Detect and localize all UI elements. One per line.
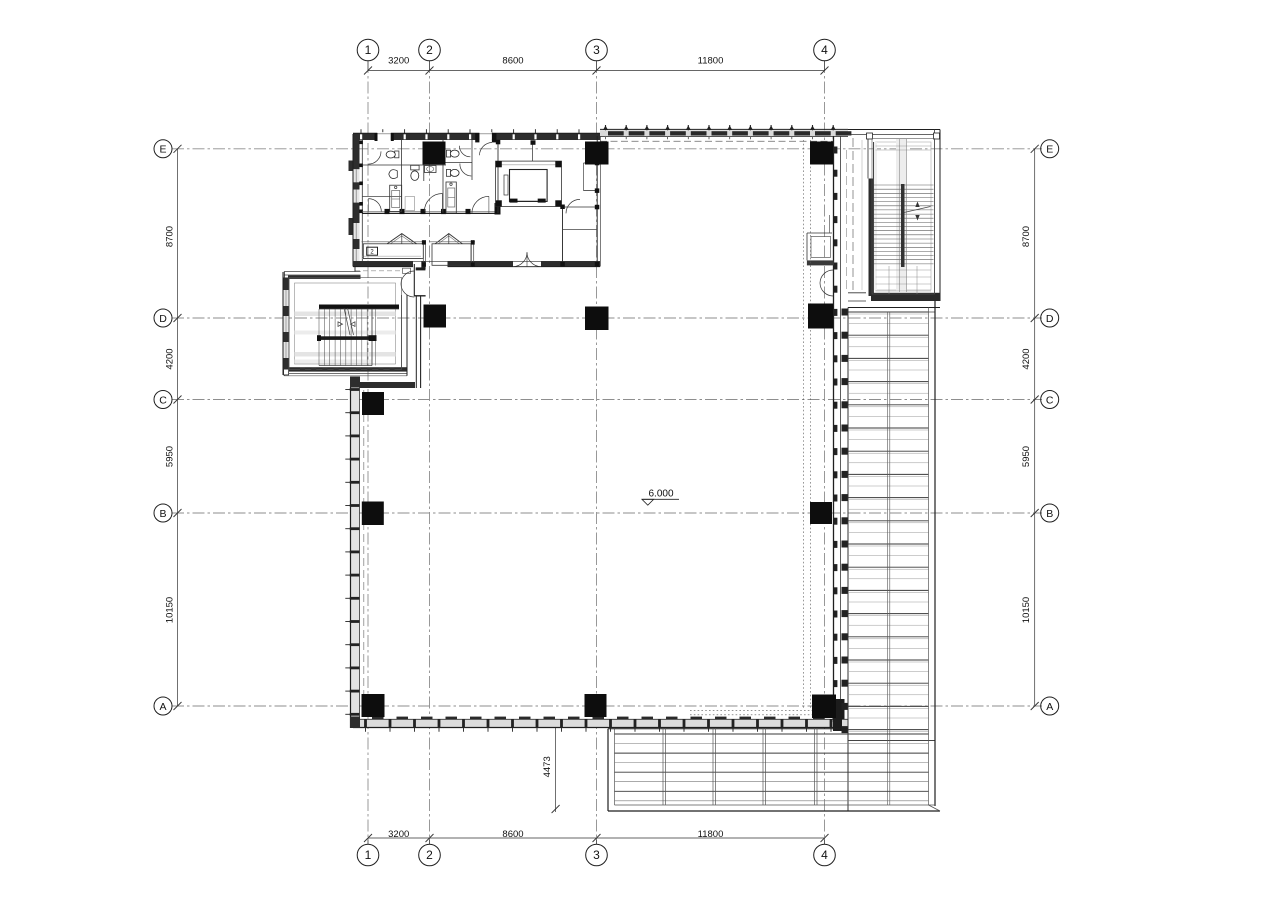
svg-text:8600: 8600: [502, 829, 523, 840]
svg-text:4: 4: [821, 848, 828, 862]
svg-text:D: D: [159, 313, 167, 325]
svg-text:5950: 5950: [165, 446, 176, 467]
svg-text:2: 2: [426, 848, 433, 862]
svg-text:11800: 11800: [698, 56, 724, 67]
svg-text:10150: 10150: [1021, 597, 1032, 623]
svg-text:B: B: [1046, 508, 1053, 520]
svg-text:8700: 8700: [165, 226, 176, 247]
svg-text:4200: 4200: [1021, 348, 1032, 369]
svg-text:1: 1: [365, 43, 372, 57]
svg-text:11800: 11800: [698, 829, 724, 840]
svg-text:10150: 10150: [165, 597, 176, 623]
svg-text:A: A: [1046, 701, 1053, 713]
svg-text:C: C: [1046, 394, 1054, 406]
svg-text:2: 2: [426, 43, 433, 57]
svg-text:C: C: [159, 394, 167, 406]
svg-text:8600: 8600: [502, 56, 523, 67]
svg-text:1: 1: [365, 848, 372, 862]
svg-text:4: 4: [821, 43, 828, 57]
svg-text:E: E: [1046, 144, 1053, 156]
svg-text:D: D: [1046, 313, 1054, 325]
svg-text:5950: 5950: [1021, 446, 1032, 467]
svg-text:3: 3: [593, 43, 600, 57]
svg-text:4473: 4473: [542, 756, 553, 777]
svg-text:3200: 3200: [388, 829, 409, 840]
svg-text:4200: 4200: [165, 348, 176, 369]
svg-text:E: E: [159, 144, 166, 156]
svg-text:A: A: [159, 701, 166, 713]
svg-text:8700: 8700: [1021, 226, 1032, 247]
svg-text:3200: 3200: [388, 56, 409, 67]
svg-text:3: 3: [593, 848, 600, 862]
svg-text:6.000: 6.000: [648, 489, 673, 500]
svg-text:B: B: [159, 508, 166, 520]
